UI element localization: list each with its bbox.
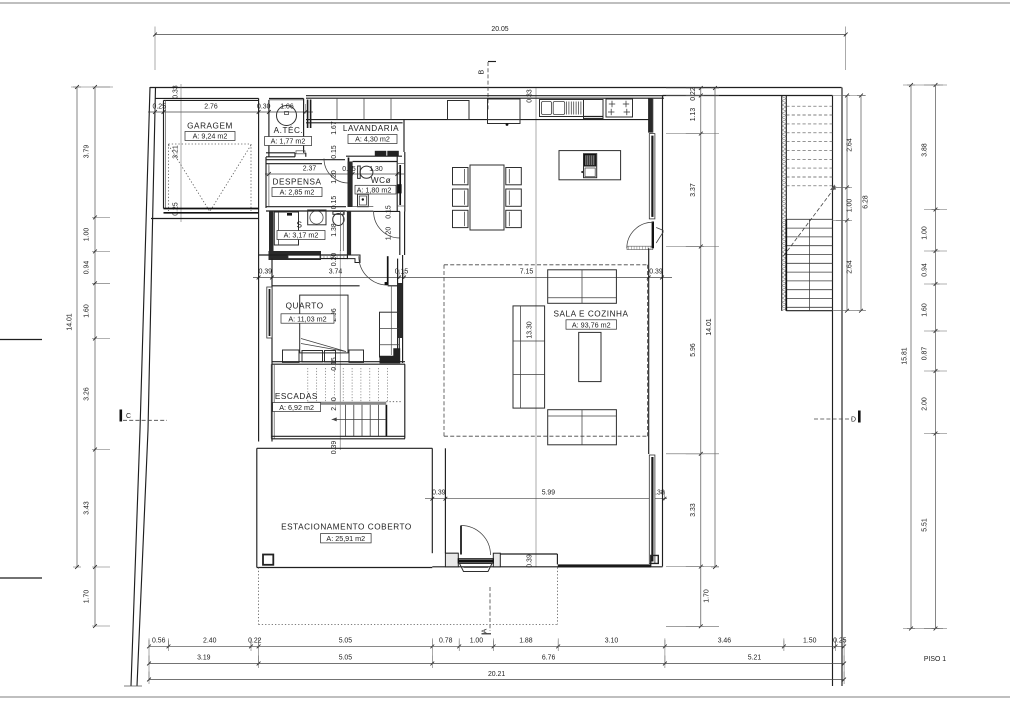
svg-text:5.05: 5.05 [339,638,353,645]
svg-text:DESPENSA: DESPENSA [273,178,322,187]
svg-text:QUARTO: QUARTO [286,302,324,311]
svg-text:0.87: 0.87 [922,347,929,361]
svg-text:2.00: 2.00 [922,397,929,411]
svg-text:6.76: 6.76 [542,655,556,662]
svg-text:A: 3,17 m2: A: 3,17 m2 [284,231,319,240]
svg-text:2.40: 2.40 [203,638,217,645]
svg-text:A: A [482,628,489,633]
svg-text:3.43: 3.43 [84,501,91,515]
svg-text:A: 1,80 m2: A: 1,80 m2 [357,185,392,194]
svg-text:1.20: 1.20 [386,227,393,241]
svg-text:3.46: 3.46 [718,638,732,645]
svg-text:3.33: 3.33 [690,503,697,517]
svg-text:0.22: 0.22 [690,87,697,101]
svg-text:LAVANDARIA: LAVANDARIA [343,124,399,133]
svg-text:A.TÉC.: A.TÉC. [274,125,304,135]
svg-text:0.15: 0.15 [331,145,338,159]
svg-text:A: 2,85 m2: A: 2,85 m2 [280,188,315,197]
svg-text:5.99: 5.99 [542,490,556,497]
svg-text:2.64: 2.64 [847,260,854,274]
svg-text:GARAGEM: GARAGEM [187,121,233,130]
svg-text:0.39: 0.39 [331,441,338,455]
svg-text:3.26: 3.26 [84,387,91,401]
svg-text:6.28: 6.28 [863,195,870,209]
svg-text:D: D [851,417,856,424]
svg-text:14.01: 14.01 [706,318,713,335]
svg-text:3.10: 3.10 [605,638,619,645]
svg-text:1.88: 1.88 [519,638,533,645]
svg-text:1.13: 1.13 [690,108,697,122]
svg-text:1.70: 1.70 [704,589,711,603]
svg-text:A: 9,24 m2: A: 9,24 m2 [193,132,228,141]
svg-text:A: 1,77 m2: A: 1,77 m2 [271,137,306,146]
svg-text:3.88: 3.88 [922,143,929,157]
svg-text:A: 6,92 m2: A: 6,92 m2 [279,403,314,412]
svg-text:0.15: 0.15 [395,269,409,276]
svg-text:C: C [126,413,131,420]
svg-text:5.21: 5.21 [748,655,762,662]
svg-text:1.70: 1.70 [84,590,91,604]
svg-text:3.79: 3.79 [84,145,91,159]
svg-text:A: 11,03 m2: A: 11,03 m2 [288,314,326,323]
svg-text:A: 93,76 m2: A: 93,76 m2 [572,320,611,329]
svg-text:2.37: 2.37 [303,166,317,173]
svg-text:20.05: 20.05 [491,26,508,33]
svg-text:B: B [479,69,486,74]
svg-text:PISO 1: PISO 1 [924,656,946,663]
svg-text:ESCADAS: ESCADAS [275,392,318,401]
svg-text:S: S [296,221,302,230]
svg-text:WCø: WCø [371,176,391,185]
svg-text:5.51: 5.51 [922,518,929,532]
svg-text:14.01: 14.01 [67,313,74,330]
svg-text:2.76: 2.76 [204,104,218,111]
svg-text:1.60: 1.60 [84,304,91,318]
svg-text:1.00: 1.00 [84,228,91,242]
svg-text:A: 25,91 m2: A: 25,91 m2 [326,534,365,543]
svg-text:0.25: 0.25 [833,638,847,645]
svg-text:0.56: 0.56 [152,638,166,645]
svg-text:1.00: 1.00 [470,638,484,645]
svg-text:5.96: 5.96 [690,343,697,357]
svg-text:2.64: 2.64 [847,138,854,152]
svg-text:13.30: 13.30 [527,321,534,338]
svg-text:0.22: 0.22 [248,638,262,645]
svg-text:0.39: 0.39 [527,554,534,568]
svg-text:5.05: 5.05 [339,655,353,662]
svg-text:SALA E COZINHA: SALA E COZINHA [553,310,628,319]
svg-text:20.21: 20.21 [488,671,505,678]
svg-text:7.15: 7.15 [520,269,534,276]
svg-text:1.60: 1.60 [922,303,929,317]
svg-text:1.30: 1.30 [369,166,383,173]
svg-text:A: 4,30 m2: A: 4,30 m2 [355,135,390,144]
svg-text:0.94: 0.94 [84,261,91,275]
svg-text:1.00: 1.00 [922,226,929,240]
svg-text:1.50: 1.50 [803,638,817,645]
svg-text:0.39: 0.39 [649,269,663,276]
svg-text:0.78: 0.78 [439,638,453,645]
svg-text:0.39: 0.39 [432,490,446,497]
svg-text:0.33: 0.33 [173,85,180,99]
svg-text:1.00: 1.00 [847,199,854,213]
svg-text:15.81: 15.81 [902,347,909,364]
svg-text:3.19: 3.19 [197,655,211,662]
svg-text:ESTACIONAMENTO COBERTO: ESTACIONAMENTO COBERTO [281,523,412,532]
svg-text:0.94: 0.94 [922,263,929,277]
svg-text:3.37: 3.37 [690,183,697,197]
svg-text:0.39: 0.39 [259,269,273,276]
